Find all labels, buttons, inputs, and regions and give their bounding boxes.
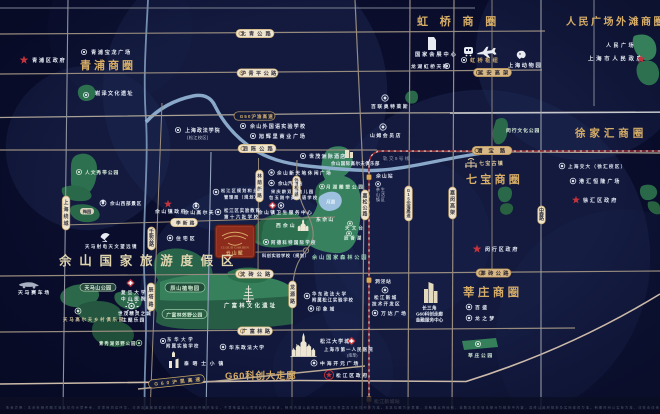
svg-text:佘山国家旅游度假区: 佘山国家旅游度假区 — [58, 253, 241, 268]
svg-text:佘山站: 佘山站 — [375, 173, 394, 180]
svg-text:龙湖虹桥天街: 龙湖虹桥天街 — [411, 63, 449, 70]
svg-text:(松江校区): (松江校区) — [187, 134, 209, 141]
svg-text:CLOUD GARDEN: CLOUD GARDEN — [221, 246, 249, 250]
svg-text:天文台: 天文台 — [345, 225, 365, 232]
svg-text:佘山汽车站: 佘山汽车站 — [277, 180, 303, 187]
svg-text:李新路: 李新路 — [175, 219, 197, 226]
svg-text:松江区规划和土地: 松江区规划和土地 — [221, 187, 263, 194]
svg-text:西佘山: 西佘山 — [276, 222, 297, 229]
svg-text:佘山镇: 佘山镇 — [376, 187, 380, 202]
svg-text:印象城: 印象城 — [316, 306, 336, 313]
svg-text:佘山国家森林公园: 佘山国家森林公园 — [311, 253, 368, 261]
svg-text:第十六批学校: 第十六批学校 — [224, 214, 260, 221]
svg-text:辰山植物园: 辰山植物园 — [170, 284, 199, 292]
svg-text:G60科创走廊: G60科创走廊 — [416, 311, 443, 318]
svg-text:附属实验学校: 附属实验学校 — [166, 343, 200, 350]
svg-text:阿德科特国际学校: 阿德科特国际学校 — [271, 239, 317, 246]
svg-text:松江新城: 松江新城 — [374, 294, 398, 301]
svg-text:天马山公园: 天马山公园 — [85, 285, 112, 292]
svg-text:住宅区: 住宅区 — [176, 235, 197, 242]
svg-text:宋庆龄双语幼儿园: 宋庆龄双语幼儿园 — [271, 188, 314, 195]
svg-text:上海动物园: 上海动物园 — [508, 61, 542, 69]
svg-text:七宝古镇: 七宝古镇 — [479, 160, 504, 167]
svg-text:嘉松公路: 嘉松公路 — [361, 192, 368, 217]
svg-text:辰香湖: 辰香湖 — [344, 235, 363, 242]
svg-text:G50沪渝高速: G50沪渝高速 — [240, 113, 274, 120]
svg-text:徐汇区政府: 徐汇区政府 — [582, 197, 618, 204]
svg-text:百盛: 百盛 — [475, 304, 489, 311]
svg-text:七宝商圈: 七宝商圈 — [466, 172, 523, 186]
svg-text:主题乐园: 主题乐园 — [122, 317, 146, 324]
svg-text:松江大学城: 松江大学城 — [320, 338, 350, 345]
svg-text:广富林文化遗址: 广富林文化遗址 — [224, 302, 277, 310]
svg-text:沪青平公路: 沪青平公路 — [241, 69, 279, 77]
svg-text:金融服务中心: 金融服务中心 — [415, 317, 444, 324]
svg-text:中山医院: 中山医院 — [121, 296, 148, 303]
svg-text:嘉闵高架: 嘉闵高架 — [449, 190, 455, 217]
svg-text:广富林郊野公园: 广富林郊野公园 — [166, 312, 202, 319]
svg-text:洞泾站: 洞泾站 — [375, 278, 392, 285]
svg-text:附属松江实验学校: 附属松江实验学校 — [312, 297, 354, 304]
svg-text:崧泽文化遗址: 崧泽文化遗址 — [95, 89, 134, 97]
svg-text:虹桥枢纽: 虹桥枢纽 — [470, 56, 500, 64]
svg-text:东佘山: 东佘山 — [316, 216, 335, 223]
svg-text:生活区: 生活区 — [381, 187, 385, 202]
svg-text:北青公路: 北青公路 — [241, 29, 274, 37]
svg-text:国家会展中心: 国家会展中心 — [415, 50, 458, 58]
svg-text:长三角: 长三角 — [422, 305, 437, 312]
svg-text:青秀湖郊野公园: 青秀湖郊野公园 — [99, 340, 137, 347]
svg-text:上海市人民政府: 上海市人民政府 — [588, 55, 645, 63]
svg-text:世茂洲际酒店: 世茂洲际酒店 — [309, 153, 347, 160]
svg-text:佘山高尔夫: 佘山高尔夫 — [183, 209, 215, 216]
svg-text:佘山新天地休闲广场: 佘山新天地休闲广场 — [276, 170, 332, 177]
svg-text:天马高尔夫乡村俱乐部: 天马高尔夫乡村俱乐部 — [63, 316, 125, 323]
svg-text:莘庄公园: 莘庄公园 — [468, 352, 494, 359]
svg-text:莘砖公路: 莘砖公路 — [481, 269, 511, 277]
svg-text:月湖雕塑公园: 月湖雕塑公园 — [325, 184, 365, 191]
svg-text:松江区政府: 松江区政府 — [336, 372, 369, 379]
svg-text:百联奥特莱斯: 百联奥特莱斯 — [371, 103, 409, 110]
svg-text:月湖: 月湖 — [325, 199, 335, 206]
svg-text:中海开元广场: 中海开元广场 — [320, 360, 360, 367]
svg-text:沈砖公路: 沈砖公路 — [240, 270, 273, 278]
svg-text:包玉刚中英双语学校: 包玉刚中英双语学校 — [269, 194, 318, 201]
svg-text:轨交9号线: 轨交9号线 — [383, 155, 411, 162]
svg-text:人民广场: 人民广场 — [605, 42, 636, 49]
svg-text:万达广场: 万达广场 — [380, 310, 408, 317]
svg-text:上海政法学院: 上海政法学院 — [185, 127, 221, 134]
svg-text:徐家汇商圈: 徐家汇商圈 — [574, 127, 647, 140]
svg-text:世茂精灵之城: 世茂精灵之城 — [118, 310, 152, 317]
svg-text:泰晤士小镇: 泰晤士小镇 — [183, 360, 227, 367]
svg-text:莘庄商圈: 莘庄商圈 — [463, 285, 523, 299]
svg-text:免责声明：本资料相关图文信息仅作示意参考，对项目周边环境、交: 免责声明：本资料相关图文信息仅作示意参考，对项目周边环境、交通及其他配套设施的介… — [6, 405, 660, 410]
svg-text:青浦区政府: 青浦区政府 — [32, 56, 66, 64]
svg-text:梅园: 梅园 — [83, 208, 91, 215]
svg-text:天马赛车场: 天马赛车场 — [18, 289, 51, 296]
svg-text:(南部): (南部) — [347, 353, 358, 358]
svg-text:G60科创大走廊: G60科创大走廊 — [225, 370, 296, 382]
svg-text:青浦宝龙广场: 青浦宝龙广场 — [91, 48, 132, 56]
svg-text:青浦商圈: 青浦商圈 — [80, 58, 136, 72]
svg-text:泗陈公路: 泗陈公路 — [243, 144, 276, 152]
svg-text:佘山西部景区: 佘山西部景区 — [109, 200, 142, 207]
svg-text:佘山外国语实验学校: 佘山外国语实验学校 — [249, 123, 306, 130]
svg-text:上海交大（徐汇校区）: 上海交大（徐汇校区） — [568, 163, 626, 170]
svg-text:延安高架: 延安高架 — [477, 68, 511, 76]
svg-text:山姆会员店: 山姆会员店 — [370, 132, 402, 139]
svg-text:天马射电天文望远镜: 天马射电天文望远镜 — [85, 243, 138, 250]
svg-text:管理局（规划）: 管理局（规划） — [224, 194, 259, 201]
svg-text:龙源路: 龙源路 — [289, 284, 296, 305]
svg-text:虹桥商圈: 虹桥商圈 — [417, 14, 508, 28]
svg-text:佘山镇政府: 佘山镇政府 — [154, 208, 187, 215]
svg-text:华东政法大学: 华东政法大学 — [229, 344, 265, 351]
svg-text:旭辉里商业广场: 旭辉里商业广场 — [258, 133, 307, 140]
svg-text:闵行区政府: 闵行区政府 — [485, 246, 519, 253]
svg-text:东华大学: 东华大学 — [167, 336, 195, 343]
svg-text:人文秀带公园: 人文秀带公园 — [85, 169, 119, 176]
svg-text:科创实验学校（规划）: 科创实验学校（规划） — [262, 252, 309, 259]
svg-text:上海市第一人民医院: 上海市第一人民医院 — [324, 346, 374, 353]
svg-text:技术开发区: 技术开发区 — [372, 301, 401, 308]
svg-text:龙之梦: 龙之梦 — [475, 315, 497, 322]
svg-text:佘山国际高尔夫俱乐部: 佘山国际高尔夫俱乐部 — [330, 160, 380, 167]
svg-text:漕宝路: 漕宝路 — [477, 146, 511, 154]
svg-text:港汇恒隆广场: 港汇恒隆广场 — [579, 178, 621, 185]
svg-text:复旦大学: 复旦大学 — [120, 289, 148, 296]
svg-text:佘山镇卫生服务中心: 佘山镇卫生服务中心 — [257, 209, 313, 216]
svg-text:闵行文化公园: 闵行文化公园 — [506, 127, 540, 134]
svg-text:华东政法大学: 华东政法大学 — [312, 291, 348, 298]
svg-text:广富林路: 广富林路 — [242, 327, 272, 335]
svg-text:松江区实验教育: 松江区实验教育 — [224, 207, 261, 214]
svg-text:人民广场外滩商圈: 人民广场外滩商圈 — [566, 15, 660, 28]
